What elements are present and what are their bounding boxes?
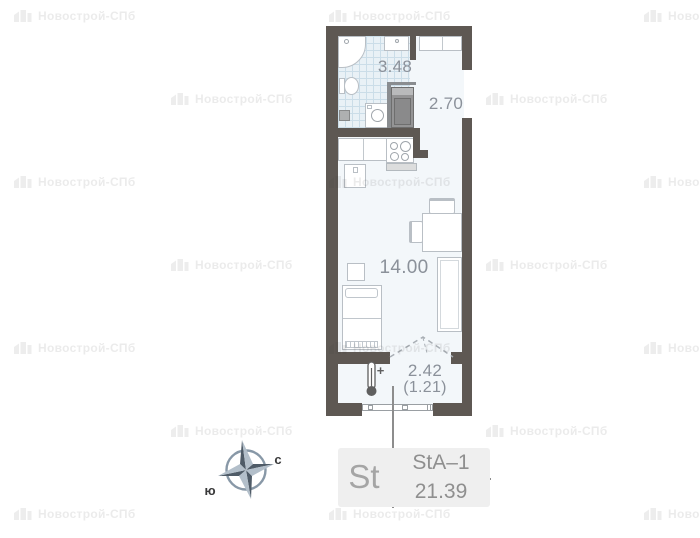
wall-right-upper <box>462 36 472 70</box>
wall-top <box>326 26 472 36</box>
stove <box>386 138 414 163</box>
watermark-text: Новострой-СПб <box>38 175 136 189</box>
wall-room-balcony <box>338 352 390 364</box>
watermark: Новострой-СПб <box>643 340 700 355</box>
watermark-text: Новострой-СПб <box>195 258 293 272</box>
watermark-text: Новострой-СПб <box>668 341 700 355</box>
watermark: Новострой-СПб <box>328 506 451 521</box>
watermark: Новострой-СПб <box>170 257 293 272</box>
wall-kitchen-stub <box>413 137 420 158</box>
floor-plan-page: 3.48 2.70 14.00 2.42 (1.21) St StA–1 21.… <box>0 0 700 538</box>
compass-star <box>218 440 274 499</box>
watermark-text: Новострой-СПб <box>195 92 293 106</box>
area-label-hallway: 2.70 <box>424 94 468 114</box>
wall-bathroom-bottom <box>338 128 420 137</box>
compass-icon: ю с <box>204 440 281 499</box>
watermark: Новострой-СПб <box>485 91 608 106</box>
watermark-text: Новострой-СПб <box>668 9 700 23</box>
watermark: Новострой-СПб <box>13 340 136 355</box>
glazing-tick <box>402 405 408 410</box>
chair <box>429 198 455 214</box>
toilet-bowl <box>344 77 359 95</box>
watermark: Новострой-СПб <box>485 423 608 438</box>
watermark: Новострой-СПб <box>643 506 700 521</box>
watermark: Новострой-СПб <box>170 423 293 438</box>
wall-balcony-bottom-right <box>433 403 462 416</box>
wall-fridge-niche-top <box>387 82 416 85</box>
kitchen-sink-cabinet <box>344 164 366 188</box>
fridge-door <box>394 98 411 125</box>
glazing-tick <box>427 404 431 411</box>
area-label-balcony: 2.42 <box>402 361 448 381</box>
glazing-tick <box>368 405 373 410</box>
watermark-text: Новострой-СПб <box>510 258 608 272</box>
watermark-text: Новострой-СПб <box>38 507 136 521</box>
burner-icon <box>401 153 409 161</box>
wardrobe-inner <box>440 260 459 329</box>
wall-kitchen-stub-foot <box>420 150 428 158</box>
watermark-text: Новострой-СПб <box>510 92 608 106</box>
watermark-text: Новострой-СПб <box>353 507 451 521</box>
bed <box>342 285 382 350</box>
blanket-line <box>343 318 381 319</box>
washer-drum-icon <box>371 109 384 122</box>
balcony-glazing <box>362 404 433 411</box>
watermark: Новострой-СПб <box>13 8 136 23</box>
kitchen-faucet-icon <box>353 167 358 173</box>
fridge-top <box>392 88 413 95</box>
area-label-living: 14.00 <box>376 257 432 279</box>
watermark-text: Новострой-СПб <box>195 424 293 438</box>
washing-machine <box>365 103 389 128</box>
sink-faucet-icon <box>395 39 399 43</box>
pillow <box>345 288 378 298</box>
wall-right-lower <box>462 118 472 416</box>
burner-icon <box>390 142 398 150</box>
watermark-text: Новострой-СПб <box>38 341 136 355</box>
washer-panel <box>367 105 372 109</box>
watermark: Новострой-СПб <box>13 506 136 521</box>
counter-return <box>386 163 417 171</box>
watermark: Новострой-СПб <box>13 174 136 189</box>
burner-icon <box>400 141 411 152</box>
watermark: Новострой-СПб <box>328 8 451 23</box>
dining-table <box>422 213 462 252</box>
unit-type-label: St <box>336 458 392 496</box>
watermark-text: Новострой-СПб <box>353 9 451 23</box>
wall-left <box>326 36 338 416</box>
watermark-text: Новострой-СПб <box>38 9 136 23</box>
compass-south-label: ю <box>204 483 215 498</box>
unit-area-label: 21.39 <box>392 480 490 504</box>
watermark-text: Новострой-СПб <box>668 507 700 521</box>
compass-north-label: с <box>274 452 281 467</box>
floor-drain <box>339 110 350 121</box>
watermark: Новострой-СПб <box>643 8 700 23</box>
nightstand <box>347 263 365 281</box>
wardrobe <box>437 257 462 332</box>
fridge <box>391 87 414 128</box>
watermark-text: Новострой-СПб <box>510 424 608 438</box>
unit-plan-code-label: StA–1 <box>392 451 490 475</box>
watermark: Новострой-СПб <box>485 257 608 272</box>
kitchen-counter <box>338 138 387 161</box>
wall-room-balcony-stub <box>451 352 462 364</box>
wall-balcony-bottom-left <box>338 403 362 416</box>
bed-footboard <box>345 341 378 348</box>
chair <box>409 221 423 243</box>
bathroom-sink <box>384 36 409 51</box>
area-label-balcony-coeff: (1.21) <box>399 379 451 397</box>
closet-divider <box>442 37 443 50</box>
entry-closet <box>419 36 462 51</box>
watermark: Новострой-СПб <box>643 174 700 189</box>
wall-fridge-niche-left <box>387 84 391 128</box>
area-label-bathroom: 3.48 <box>370 57 420 77</box>
counter-divider <box>363 139 364 160</box>
watermark-text: Новострой-СПб <box>668 175 700 189</box>
bath-faucet-icon <box>344 39 349 44</box>
burner-icon <box>390 152 399 161</box>
watermark: Новострой-СПб <box>170 91 293 106</box>
